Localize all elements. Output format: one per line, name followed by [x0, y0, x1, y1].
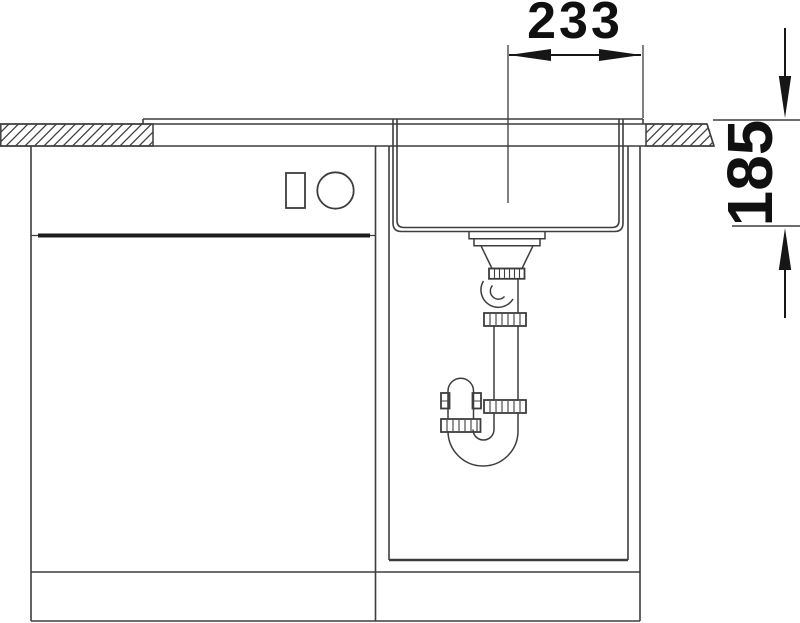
trap-u-bend-outer — [448, 431, 518, 466]
drain-flange-lower — [474, 239, 540, 246]
trap-nut-4-ridges — [447, 420, 477, 431]
trap-pipe-mid — [494, 326, 518, 400]
sink — [143, 119, 643, 232]
dimension-width-arrow-right — [599, 49, 641, 61]
trap-nut-1-ridges — [495, 269, 520, 278]
countertop-hatch-right — [646, 124, 714, 146]
drain-flange-upper — [469, 232, 545, 239]
trap-arm-sides — [448, 391, 474, 419]
trap-inlet-curl-inner — [490, 286, 504, 300]
dimension-width-arrow-left — [509, 49, 551, 61]
technical-drawing-canvas: 233 185 — [0, 0, 800, 623]
dimension-width-label: 233 — [508, 0, 642, 47]
cabinets — [31, 146, 640, 621]
dimension-depth-arrow-down — [779, 76, 791, 118]
trap-arm-cap — [448, 378, 474, 391]
trap-nut-2-ridges — [490, 314, 520, 325]
sink-section-drawing — [0, 0, 800, 623]
drain-strainer-cup — [481, 246, 533, 269]
appliance-control-knob — [317, 172, 353, 208]
appliance-control-rect — [286, 173, 305, 208]
dimension-depth-arrow-up — [779, 228, 791, 270]
trap-nut-3-ridges — [490, 401, 520, 412]
trap-pipe-lower — [494, 413, 518, 431]
trap-inlet-curl-outer — [481, 281, 513, 307]
trap-u-bend-inner — [473, 430, 494, 441]
countertop-hatch-left — [1, 124, 153, 146]
drain-trap — [441, 232, 545, 467]
dimension-depth-label: 185 — [719, 118, 781, 228]
countertop — [0, 124, 714, 146]
